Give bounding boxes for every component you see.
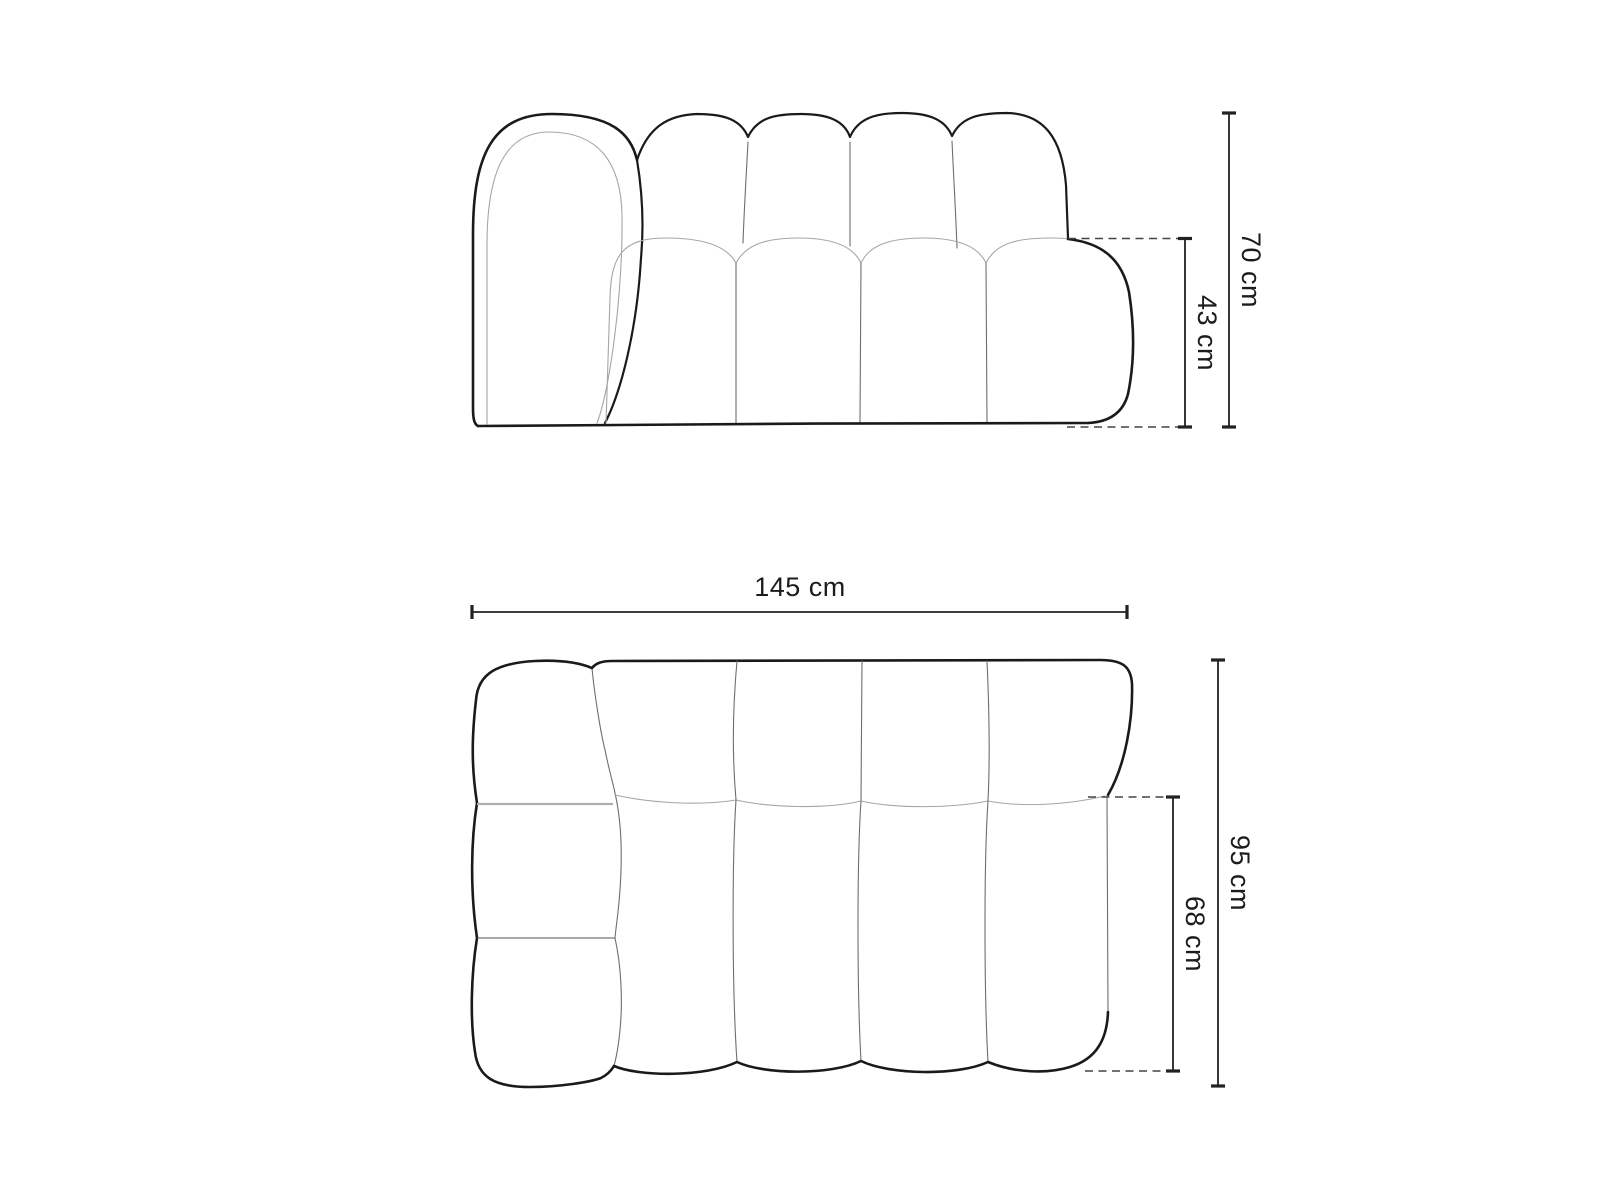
front-armrest-inner-line bbox=[487, 132, 622, 424]
front-seat-seam-2 bbox=[860, 263, 861, 423]
front-view: 43 cm 70 cm bbox=[473, 113, 1266, 427]
width-label: 145 cm bbox=[754, 572, 846, 602]
front-total-height-dimension: 70 cm bbox=[1222, 113, 1266, 427]
top-backrest-seam-2 bbox=[861, 661, 862, 801]
front-seat-right-edge bbox=[1068, 239, 1133, 423]
diagram-canvas: 43 cm 70 cm 145 cm bbox=[0, 0, 1600, 1200]
top-width-dimension: 145 cm bbox=[472, 572, 1127, 619]
top-seat-right-edge bbox=[1107, 797, 1108, 1012]
sofa-dimension-diagram: 43 cm 70 cm 145 cm bbox=[0, 0, 1600, 1200]
top-seat-front-scallops bbox=[614, 1012, 1108, 1074]
top-seat-seam-3 bbox=[985, 801, 988, 1062]
top-view: 145 cm bbox=[472, 572, 1255, 1087]
front-armrest-outline bbox=[473, 114, 637, 426]
front-seat-seam-3 bbox=[986, 263, 987, 423]
top-seat-seam-2 bbox=[858, 801, 861, 1061]
front-seat-height-dimension: 43 cm bbox=[1178, 239, 1222, 428]
total-depth-label: 95 cm bbox=[1225, 835, 1255, 911]
total-height-label: 70 cm bbox=[1236, 232, 1266, 308]
top-seat-depth-dimension: 68 cm bbox=[1166, 797, 1210, 1071]
top-armrest-backrest-boundary bbox=[592, 668, 615, 793]
seat-depth-label: 68 cm bbox=[1180, 896, 1210, 972]
top-total-depth-dimension: 95 cm bbox=[1211, 660, 1255, 1086]
front-backrest-seam-1 bbox=[743, 142, 748, 243]
top-backrest-bottom-scallop bbox=[615, 795, 1105, 807]
front-backrest-seam-3 bbox=[952, 141, 957, 248]
top-armrest-right-boundary bbox=[614, 793, 621, 1066]
top-armrest-outline bbox=[472, 661, 614, 1087]
front-seat-top-arcs bbox=[606, 238, 1068, 423]
front-backrest-arches bbox=[637, 113, 1068, 238]
top-backrest-seam-1 bbox=[733, 661, 737, 800]
top-seat-seam-1 bbox=[733, 800, 737, 1062]
seat-height-label: 43 cm bbox=[1192, 295, 1222, 371]
front-bottom-line bbox=[478, 423, 1088, 426]
top-backrest-seam-3 bbox=[987, 661, 989, 801]
